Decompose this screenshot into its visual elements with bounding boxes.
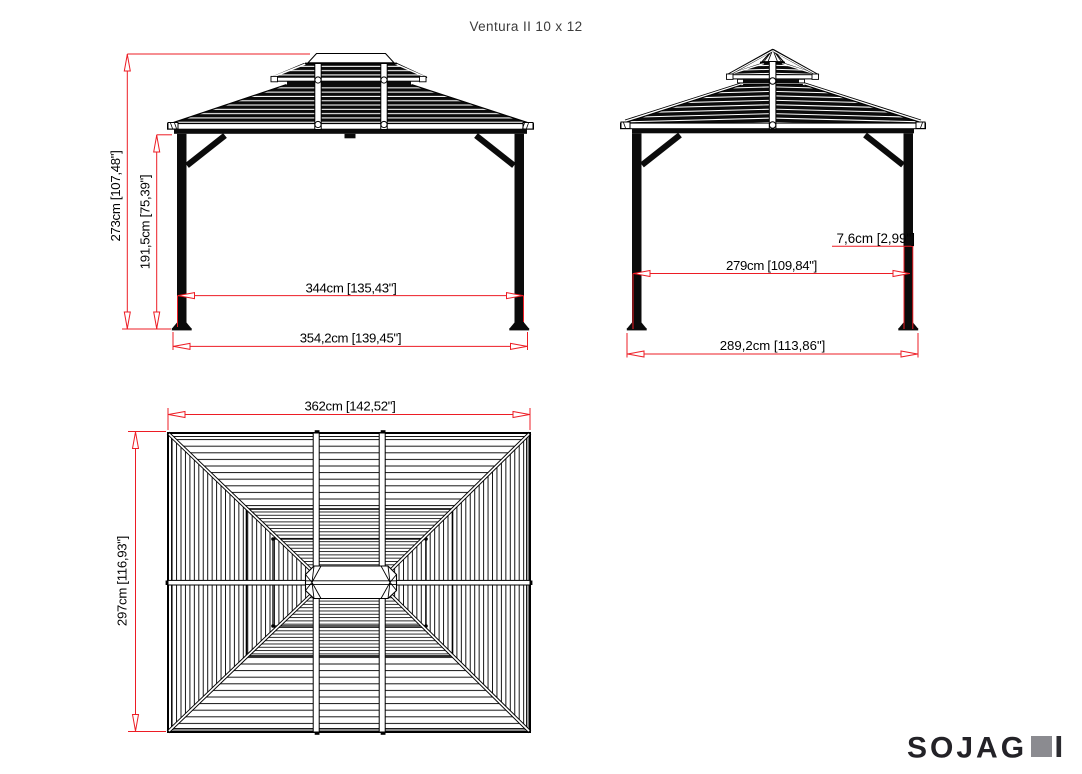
svg-text:273cm [107,48"]: 273cm [107,48"] [108, 150, 123, 241]
svg-text:362cm [142,52"]: 362cm [142,52"] [304, 399, 395, 414]
svg-text:289,2cm [113,86"]: 289,2cm [113,86"] [720, 338, 826, 353]
svg-text:344cm [135,43"]: 344cm [135,43"] [305, 280, 396, 295]
svg-text:354,2cm [139,45"]: 354,2cm [139,45"] [300, 331, 402, 346]
svg-text:SOJAG: SOJAG [907, 732, 1027, 765]
svg-text:7,6cm [2,99"]: 7,6cm [2,99"] [837, 231, 915, 246]
svg-text:191,5cm [75,39"]: 191,5cm [75,39"] [138, 175, 153, 269]
svg-text:Ventura II 10 x 12: Ventura II 10 x 12 [469, 19, 582, 34]
svg-text:279cm [109,84"]: 279cm [109,84"] [726, 258, 817, 273]
svg-text:297cm [116,93"]: 297cm [116,93"] [115, 536, 130, 626]
